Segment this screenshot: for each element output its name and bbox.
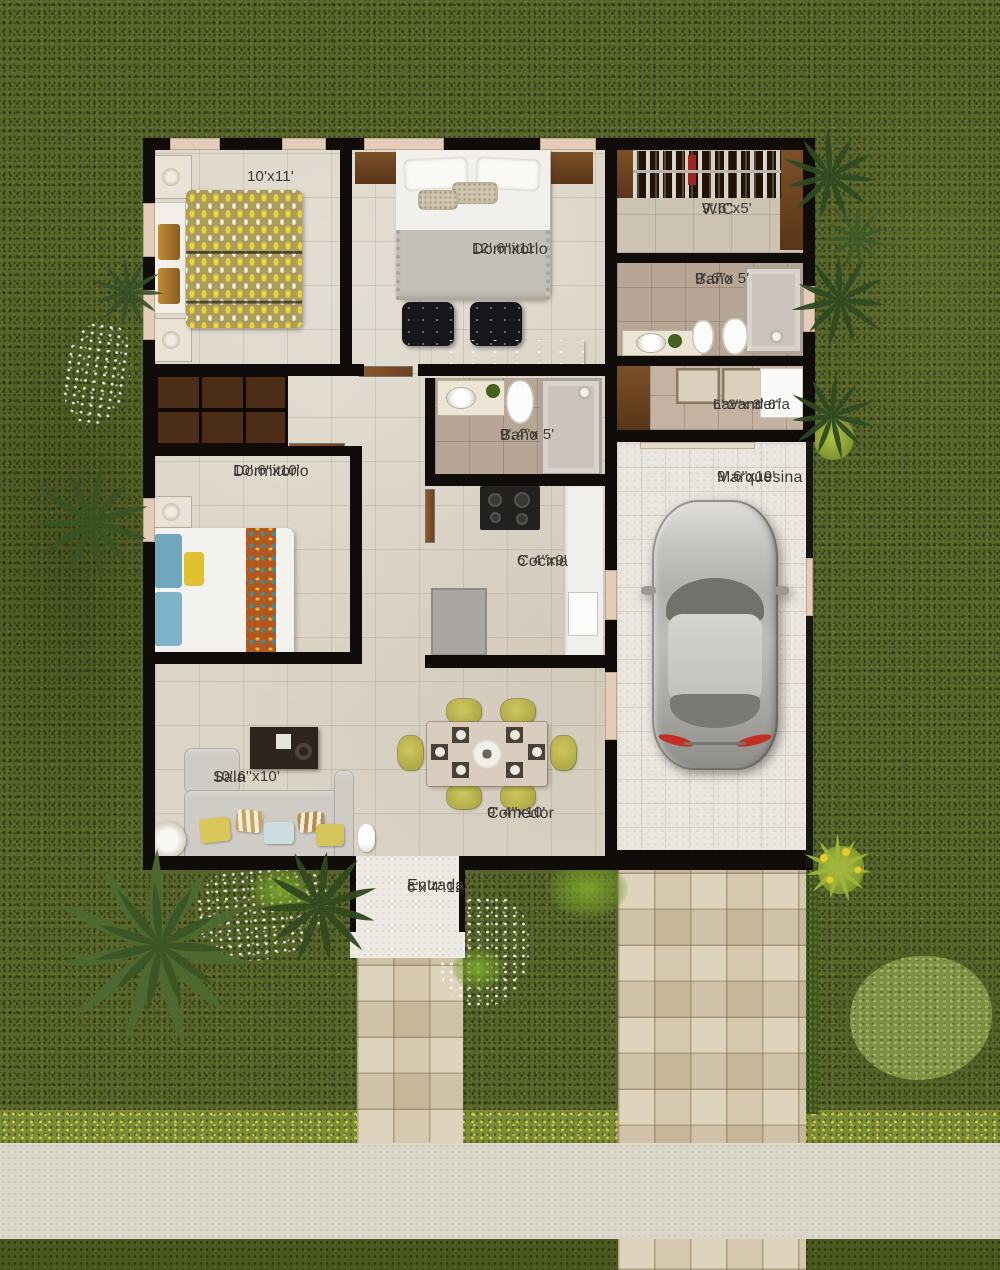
room-dims: 9'.4''x10' [487, 804, 546, 822]
wall [350, 456, 362, 664]
room-dims: 6'x 4'.12'' [407, 879, 470, 897]
window [540, 138, 596, 150]
kitchen-counter [563, 486, 603, 668]
wall [143, 856, 350, 870]
window [282, 138, 326, 150]
wardrobe-panel [617, 150, 633, 198]
place-setting [452, 727, 469, 743]
window [803, 286, 815, 332]
dining-chair [447, 784, 481, 809]
threshold-sill [640, 442, 755, 449]
pillow [158, 268, 180, 304]
wall [605, 430, 815, 442]
place-setting [506, 727, 523, 743]
bed-yellow [186, 190, 302, 328]
room-dims: 10'.6''x10' [233, 462, 300, 480]
pillow [158, 224, 180, 260]
porch-rail [350, 856, 356, 932]
room-dims: 9'.6''x5' [702, 200, 752, 218]
room-dims: 12'.6''x11' [472, 240, 538, 258]
window [806, 558, 813, 616]
throw-pillow [199, 816, 231, 843]
shower-drain [770, 330, 783, 343]
window [143, 290, 155, 340]
toilet [506, 380, 534, 424]
wall [425, 378, 435, 474]
pillow-yellow [184, 552, 204, 586]
toilet [722, 318, 748, 355]
grass-strip-bottom [0, 1239, 1000, 1270]
throw-pillow [316, 824, 344, 846]
wardrobe-closet [155, 374, 288, 446]
wall [465, 856, 617, 870]
grass-tuft [250, 868, 312, 914]
wall [425, 474, 617, 486]
carport-post-rail [806, 442, 813, 868]
dining-chair [398, 736, 423, 770]
hanging-clothes [633, 151, 781, 198]
closet-rod [633, 170, 781, 173]
wall [617, 850, 812, 868]
window [364, 138, 444, 150]
wardrobe-panel [780, 150, 803, 250]
wall [143, 652, 362, 664]
room-dims: 9'.6''x 5' [695, 270, 749, 288]
bed-runner [246, 528, 276, 658]
room-dims: 9'.6''x19' [717, 468, 776, 486]
sidewalk [0, 1143, 1000, 1239]
room-dims: 10'x11' [247, 168, 294, 186]
door [360, 367, 412, 376]
window [143, 203, 155, 257]
kitchen-sink [568, 592, 598, 636]
decor-plate [295, 743, 312, 760]
place-setting [506, 762, 523, 778]
wall [605, 253, 815, 263]
pillow [418, 190, 458, 210]
side-table [150, 822, 186, 858]
place-setting [452, 762, 469, 778]
window [605, 570, 617, 620]
sink-basin [447, 388, 475, 408]
wall [143, 138, 815, 150]
nightstand [150, 496, 192, 528]
dining-chair [447, 699, 481, 724]
plant [668, 334, 682, 348]
room-dims: 9'.4''x 5' [500, 426, 554, 444]
room-dims: 6'.2''x 3'.6'' [713, 396, 782, 413]
car-top-view [652, 500, 778, 770]
throw-pillow [264, 822, 294, 844]
throw-pillow [235, 809, 263, 834]
dining-chair [501, 699, 535, 724]
sofa-armrest [334, 770, 354, 862]
decor-box [276, 734, 291, 749]
car-trunk-line [684, 742, 746, 745]
car-roof [668, 614, 762, 702]
wall [143, 364, 364, 376]
dog [358, 824, 375, 852]
dining-chair [551, 736, 576, 770]
room-dims: 6'.4''x9' [517, 552, 567, 570]
laundry-cabinet [617, 366, 650, 430]
wall [418, 364, 617, 376]
dresser [432, 340, 584, 364]
shower-drain [578, 386, 591, 399]
door [426, 490, 434, 542]
place-setting [528, 744, 545, 760]
bidet [692, 320, 714, 354]
refrigerator [431, 588, 487, 656]
nightstand [355, 152, 397, 184]
wall [143, 446, 362, 456]
centerpiece-tray [472, 739, 502, 769]
pillow [452, 182, 498, 204]
wall [605, 356, 815, 366]
place-setting [431, 744, 448, 760]
car-mirror [774, 586, 789, 595]
cooktop [480, 486, 540, 530]
entry-porch-floor [350, 856, 465, 958]
room-dims: 10'.6''x10' [213, 768, 280, 786]
window [605, 672, 617, 740]
pillow-blue [154, 592, 182, 646]
window [170, 138, 220, 150]
floor-plan-rendering: 10'x11' Dormitorio 12'.6''x11' WIC 9'.6'… [0, 0, 1000, 1270]
plant [486, 384, 500, 398]
window [143, 498, 155, 542]
car-mirror [641, 586, 656, 595]
nightstand [551, 152, 593, 184]
pillow-blue [154, 534, 182, 588]
wall [340, 150, 352, 364]
sink-basin [637, 334, 665, 352]
wall [425, 655, 617, 668]
